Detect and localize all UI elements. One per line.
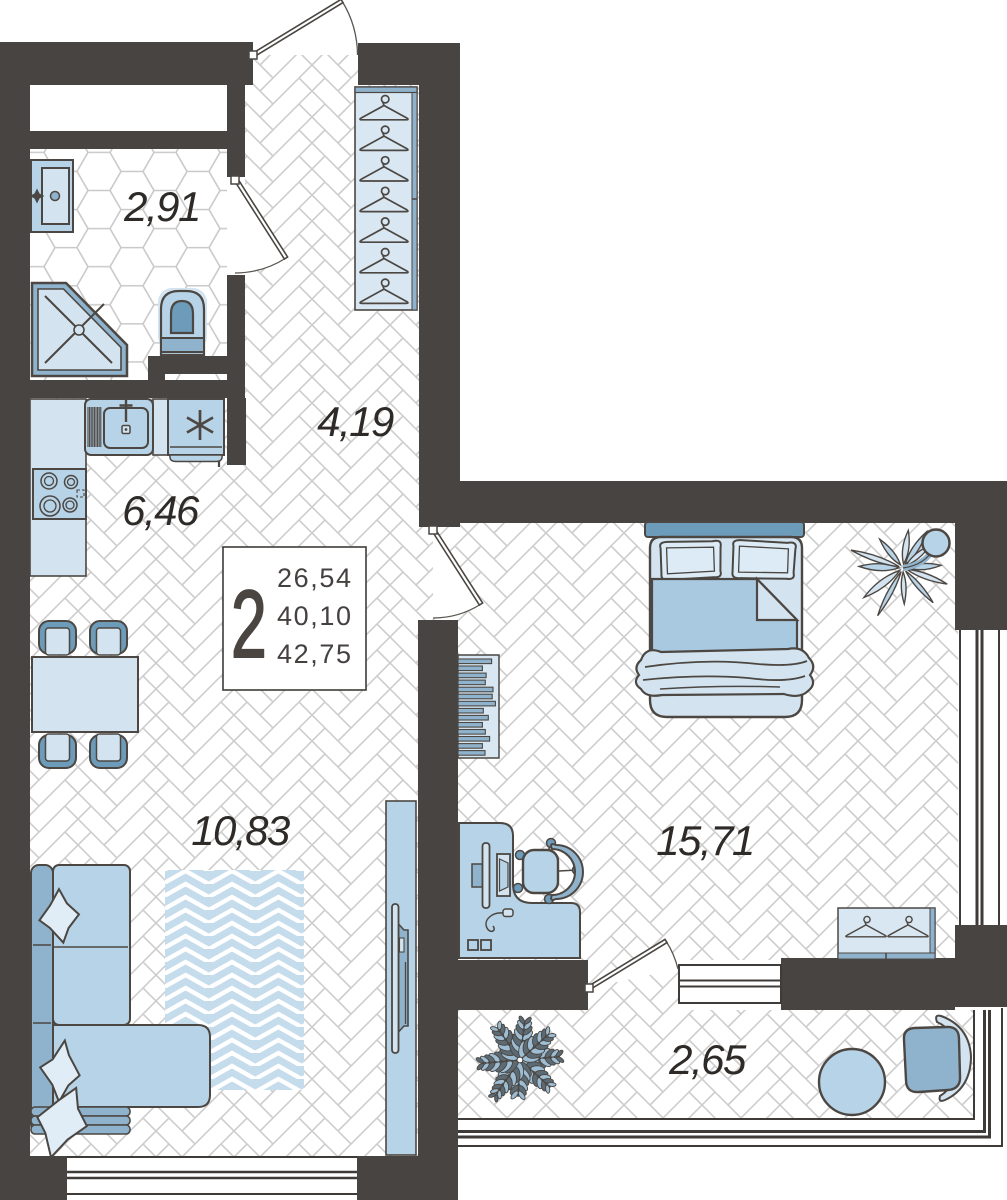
- svg-text:4,19: 4,19: [317, 398, 394, 445]
- svg-text:2,65: 2,65: [668, 1036, 747, 1083]
- svg-text:10,83: 10,83: [191, 807, 290, 854]
- svg-text:2: 2: [231, 571, 267, 678]
- svg-text:40,10: 40,10: [277, 601, 353, 631]
- svg-text:15,71: 15,71: [656, 817, 754, 864]
- svg-text:26,54: 26,54: [277, 563, 353, 593]
- svg-text:42,75: 42,75: [277, 639, 353, 669]
- svg-text:6,46: 6,46: [122, 487, 200, 534]
- svg-text:2,91: 2,91: [123, 183, 200, 230]
